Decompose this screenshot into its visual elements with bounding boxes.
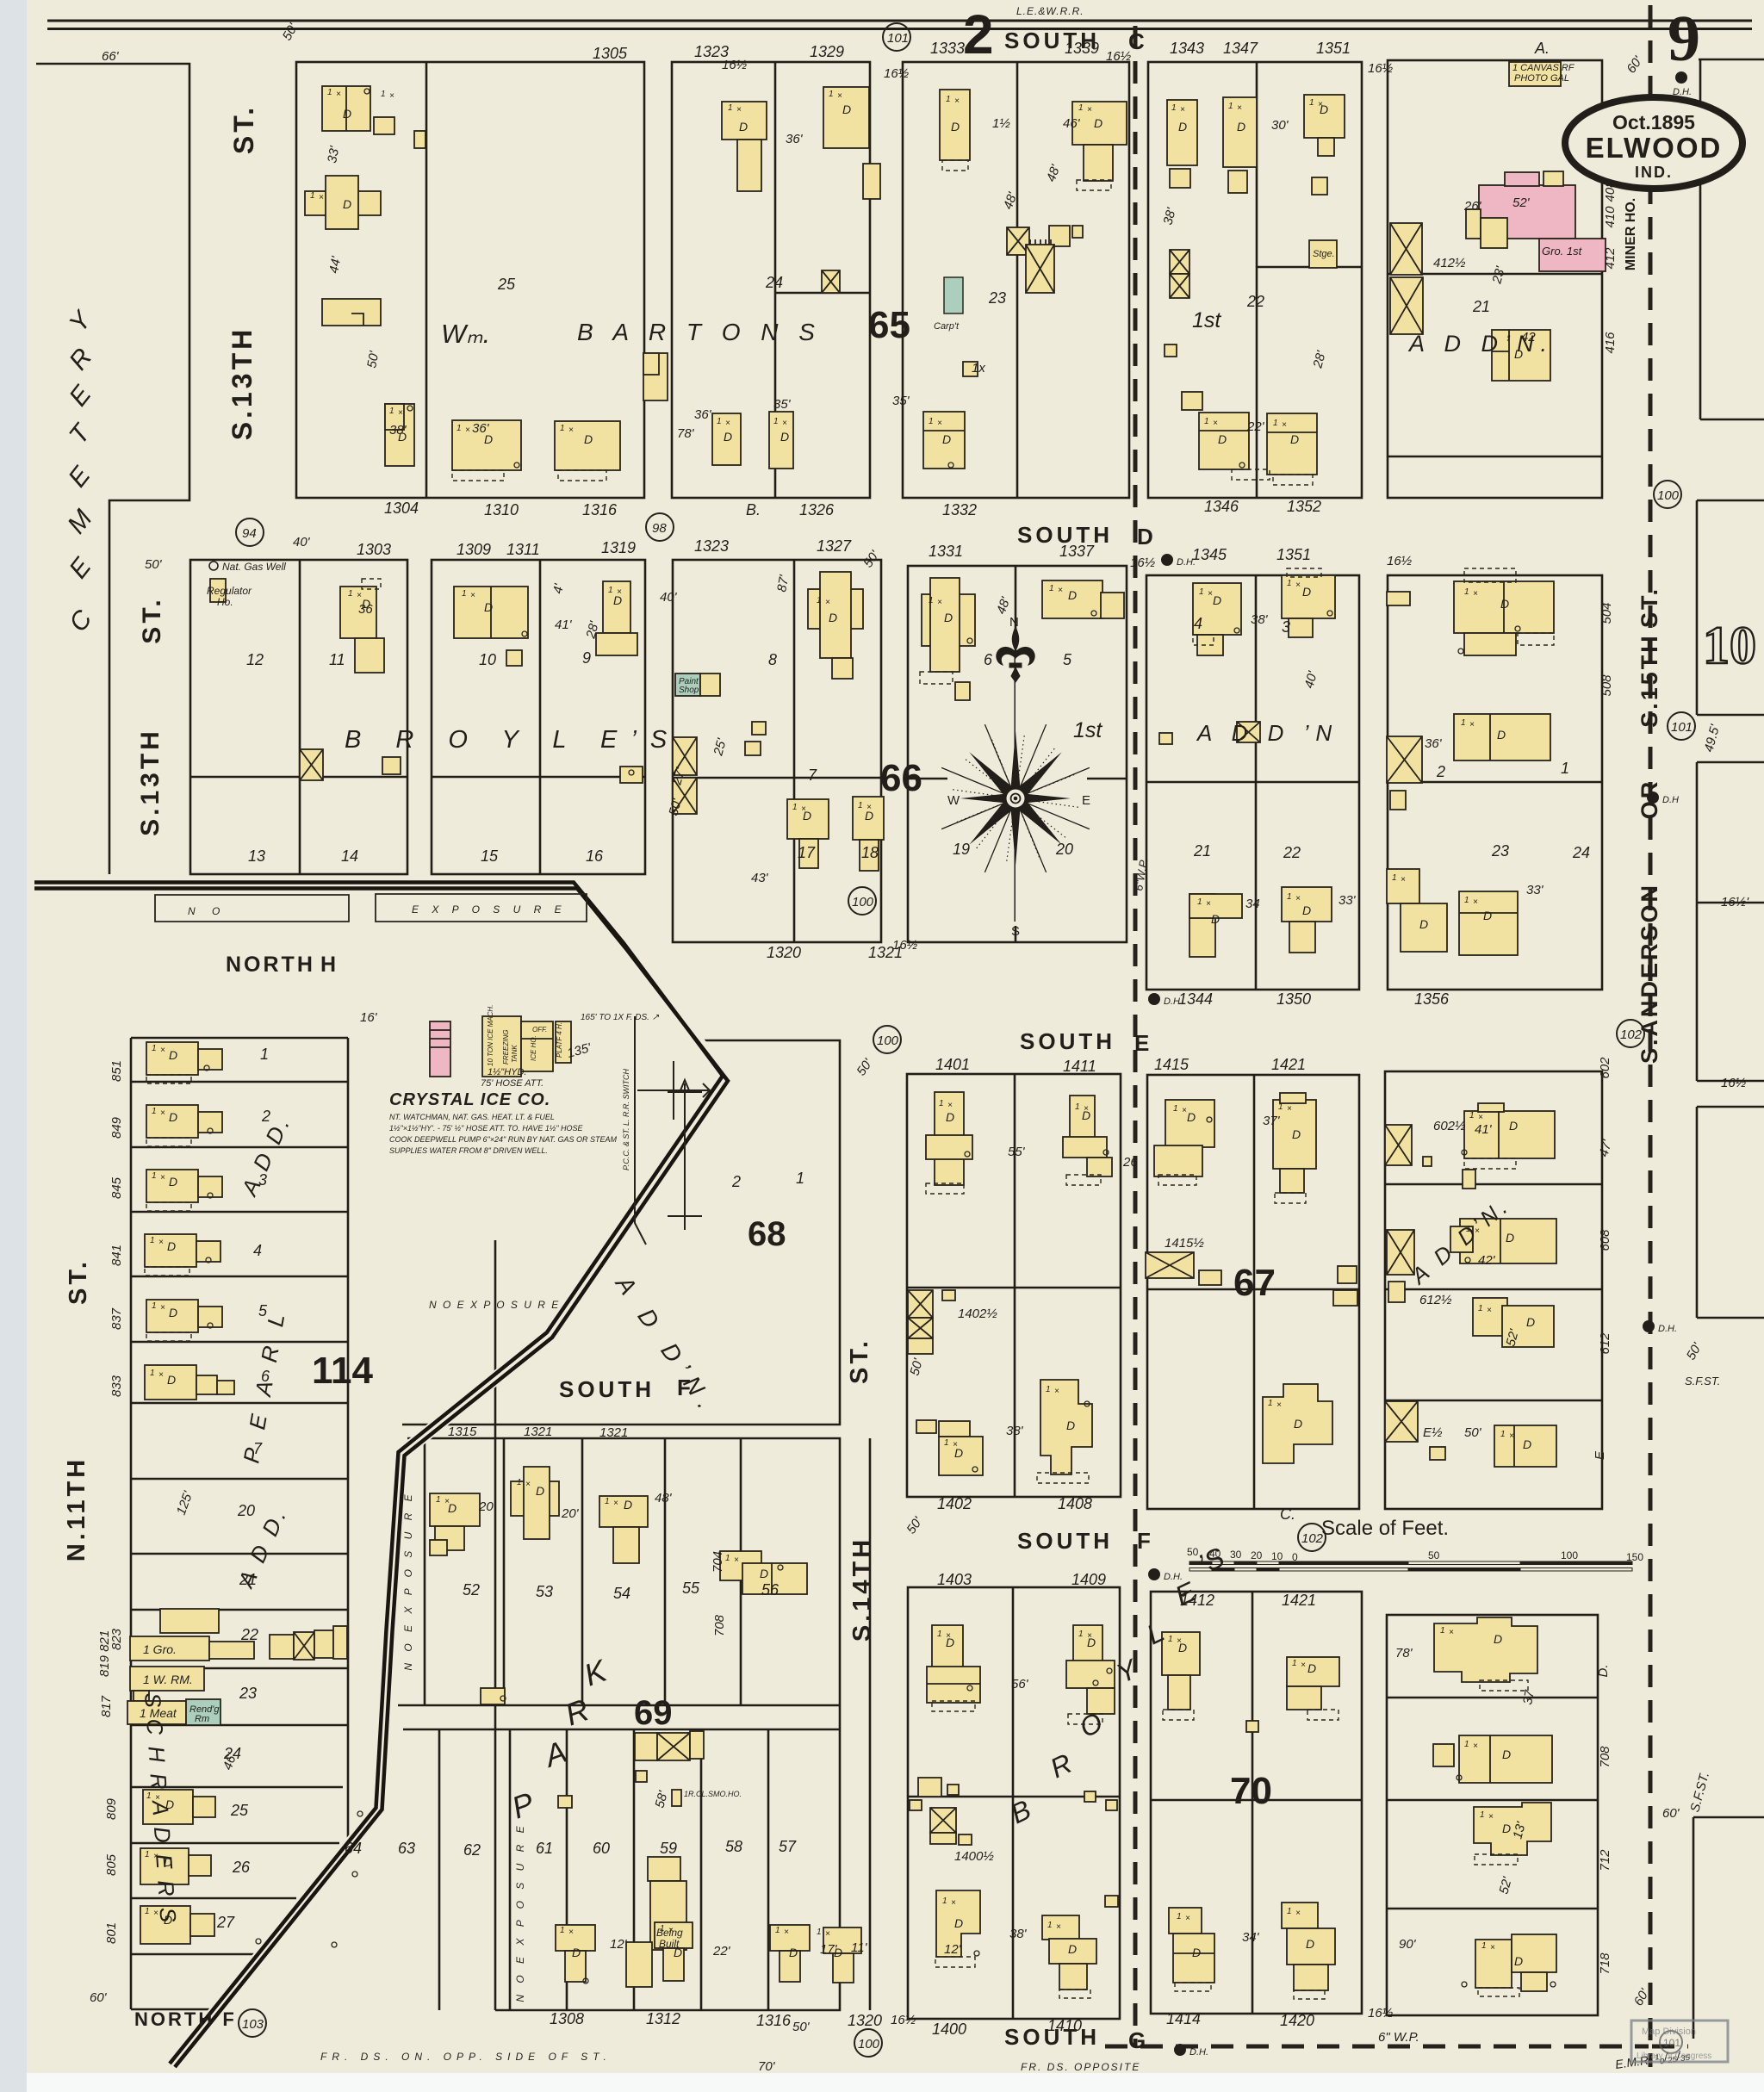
svg-text:E: E (1134, 1030, 1152, 1056)
svg-text:62: 62 (463, 1841, 481, 1859)
svg-text:×: × (1185, 1914, 1190, 1923)
svg-text:1: 1 (728, 103, 733, 113)
svg-text:69: 69 (634, 1694, 673, 1732)
svg-text:416: 416 (1603, 332, 1618, 354)
svg-text:ST.: ST. (846, 1338, 873, 1384)
svg-text:×: × (1213, 419, 1218, 428)
svg-text:1: 1 (1287, 579, 1292, 588)
svg-text:18: 18 (861, 844, 879, 861)
svg-text:D: D (842, 102, 851, 116)
svg-text:1: 1 (327, 88, 332, 97)
svg-text:×: × (1206, 899, 1211, 909)
svg-text:66': 66' (102, 49, 120, 64)
svg-text:20': 20' (561, 1506, 580, 1521)
svg-text:D: D (343, 107, 351, 121)
svg-text:×: × (1473, 1741, 1478, 1751)
svg-text:TANK: TANK (511, 1045, 519, 1063)
svg-text:×: × (668, 1926, 674, 1935)
svg-text:MINER HO.: MINER HO. (1624, 198, 1638, 270)
svg-text:52: 52 (463, 1581, 480, 1598)
svg-text:10: 10 (1703, 617, 1756, 675)
svg-text:13: 13 (248, 847, 265, 865)
svg-text:90': 90' (1399, 1937, 1417, 1952)
svg-text:6" W.P.: 6" W.P. (1378, 2030, 1419, 2045)
svg-text:10 TON ICE MACH.: 10 TON ICE MACH. (487, 1005, 494, 1066)
svg-text:50: 50 (1428, 1549, 1440, 1561)
svg-text:1: 1 (1204, 417, 1209, 426)
svg-text:612½: 612½ (1419, 1293, 1452, 1307)
svg-text:56': 56' (1011, 1677, 1029, 1692)
svg-text:26: 26 (1122, 1155, 1138, 1170)
svg-text:67: 67 (1233, 1262, 1276, 1304)
svg-text:Scale of Feet.: Scale of Feet. (1321, 1517, 1449, 1540)
svg-text:×: × (1487, 1306, 1492, 1315)
svg-text:608: 608 (1598, 1229, 1612, 1251)
svg-text:×: × (158, 1238, 164, 1247)
svg-text:25: 25 (230, 1802, 249, 1819)
svg-text:1: 1 (817, 1927, 822, 1937)
svg-text:Regulator: Regulator (207, 585, 252, 597)
svg-text:1: 1 (1273, 419, 1278, 428)
svg-text:1 Gro.: 1 Gro. (143, 1642, 177, 1656)
svg-text:×: × (160, 1303, 165, 1313)
svg-text:1408: 1408 (1058, 1495, 1092, 1512)
svg-text:55: 55 (682, 1580, 700, 1597)
svg-text:1: 1 (1197, 897, 1202, 907)
svg-text:D: D (624, 1498, 632, 1512)
svg-text:D: D (1213, 593, 1221, 607)
svg-text:D: D (1066, 1418, 1075, 1432)
svg-text:1: 1 (1464, 1740, 1469, 1749)
svg-text:1: 1 (348, 589, 353, 599)
svg-text:×: × (837, 91, 842, 101)
svg-text:D: D (484, 432, 493, 446)
svg-text:36': 36' (786, 132, 804, 146)
svg-text:1: 1 (152, 1107, 157, 1116)
svg-text:D: D (164, 1913, 172, 1927)
svg-text:1: 1 (1168, 1635, 1173, 1644)
svg-text:78': 78' (1395, 1646, 1413, 1661)
svg-text:26: 26 (232, 1859, 251, 1876)
svg-text:61: 61 (536, 1840, 553, 1857)
svg-text:C.: C. (1280, 1505, 1295, 1523)
svg-text:1346: 1346 (1204, 498, 1239, 515)
svg-text:11': 11' (851, 1940, 868, 1955)
svg-text:1st: 1st (1073, 718, 1102, 742)
svg-text:1411: 1411 (1063, 1058, 1096, 1075)
svg-text:1: 1 (1228, 102, 1233, 111)
svg-text:1352: 1352 (1287, 498, 1321, 515)
svg-text:50: 50 (1187, 1546, 1199, 1558)
svg-text:1329: 1329 (810, 43, 844, 60)
svg-text:D.H: D.H (1662, 795, 1679, 805)
svg-text:1: 1 (1292, 1659, 1297, 1668)
svg-text:D.: D. (1596, 1665, 1611, 1678)
svg-text:16½: 16½ (1368, 2006, 1394, 2021)
svg-text:1: 1 (605, 1497, 610, 1506)
svg-text:1403: 1403 (937, 1571, 972, 1588)
svg-text:40: 40 (1209, 1548, 1221, 1560)
svg-text:1x: 1x (972, 361, 985, 376)
svg-text:70': 70' (758, 2059, 776, 2074)
svg-text:×: × (389, 91, 394, 101)
svg-text:1: 1 (1049, 584, 1054, 593)
svg-text:×: × (866, 803, 872, 812)
svg-text:D: D (1187, 1110, 1196, 1124)
svg-text:48': 48' (655, 1491, 673, 1505)
svg-text:1: 1 (560, 424, 565, 433)
svg-text:ST.: ST. (228, 104, 259, 154)
svg-text:36': 36' (694, 407, 712, 422)
svg-text:1402: 1402 (937, 1495, 972, 1512)
svg-text:1 Meat: 1 Meat (140, 1706, 177, 1720)
svg-text:×: × (1401, 875, 1406, 885)
svg-text:6: 6 (261, 1368, 270, 1385)
svg-text:S.14TH: S.14TH (848, 1536, 876, 1642)
svg-text:2: 2 (731, 1173, 741, 1190)
svg-text:N.11TH: N.11TH (63, 1456, 90, 1561)
svg-text:40': 40' (660, 590, 678, 605)
svg-text:26': 26' (1463, 199, 1482, 214)
svg-text:6: 6 (984, 651, 993, 668)
svg-text:ST.: ST. (65, 1258, 92, 1305)
svg-text:1333: 1333 (930, 40, 965, 57)
svg-text:×: × (1301, 1661, 1306, 1670)
svg-text:16½: 16½ (722, 58, 748, 72)
svg-text:46': 46' (1063, 116, 1081, 131)
svg-text:59: 59 (660, 1840, 677, 1857)
svg-text:1304: 1304 (384, 500, 419, 517)
svg-text:1323: 1323 (694, 537, 729, 555)
svg-text:D: D (362, 597, 370, 611)
svg-text:1409: 1409 (1071, 1571, 1106, 1588)
svg-text:P.C.C. & ST. L. R.R. SWITCH: P.C.C. & ST. L. R.R. SWITCH (622, 1068, 630, 1170)
svg-text:1343: 1343 (1170, 40, 1204, 57)
svg-text:1415: 1415 (1154, 1056, 1189, 1073)
svg-text:D: D (780, 430, 789, 444)
svg-text:23: 23 (1491, 842, 1509, 860)
svg-text:27: 27 (216, 1914, 235, 1931)
svg-text:×: × (1058, 586, 1063, 595)
svg-text:D: D (1292, 1127, 1301, 1141)
svg-text:25: 25 (497, 276, 516, 293)
svg-text:16½: 16½ (1130, 556, 1156, 570)
svg-text:A D D ’N: A D D ’N (1196, 720, 1339, 746)
svg-text:704: 704 (711, 1551, 725, 1573)
svg-text:E X P O S U R E: E X P O S U R E (412, 903, 567, 916)
svg-text:50': 50' (145, 557, 163, 572)
svg-text:PLATF 4 H.: PLATF 4 H. (556, 1022, 563, 1058)
svg-text:16½: 16½ (1721, 1076, 1747, 1090)
svg-text:COOK DEEPWELL PUMP 6"×24" RUN: COOK DEEPWELL PUMP 6"×24" RUN BY NAT. GA… (389, 1135, 618, 1144)
svg-text:1: 1 (1440, 1626, 1445, 1636)
svg-text:×: × (1478, 1113, 1483, 1122)
svg-text:53: 53 (536, 1583, 553, 1600)
svg-text:D: D (1302, 903, 1311, 917)
svg-text:×: × (470, 591, 475, 600)
svg-text:1: 1 (944, 1438, 949, 1448)
svg-text:Rm: Rm (195, 1714, 209, 1724)
svg-text:D: D (1509, 1119, 1518, 1133)
svg-text:16½: 16½ (892, 938, 918, 953)
svg-text:809: 809 (104, 1797, 119, 1820)
svg-text:1: 1 (1469, 1111, 1475, 1120)
svg-text:1: 1 (608, 586, 613, 595)
svg-text:837: 837 (109, 1307, 124, 1330)
svg-text:1420: 1420 (1280, 2012, 1314, 2029)
svg-text:×: × (953, 1440, 958, 1450)
svg-text:×: × (155, 1793, 160, 1803)
svg-text:D: D (169, 1175, 177, 1189)
svg-text:33': 33' (1526, 883, 1544, 897)
svg-text:1351: 1351 (1276, 546, 1311, 563)
svg-text:×: × (1282, 420, 1287, 430)
svg-text:1: 1 (146, 1791, 152, 1801)
svg-text:58: 58 (725, 1838, 742, 1855)
svg-text:1: 1 (436, 1495, 441, 1505)
svg-text:100: 100 (858, 2037, 880, 2052)
svg-text:1412: 1412 (1180, 1592, 1214, 1609)
svg-text:30: 30 (1230, 1549, 1242, 1561)
svg-text:16½: 16½ (1106, 49, 1132, 64)
svg-text:1: 1 (937, 1630, 942, 1639)
svg-text:1: 1 (796, 1170, 804, 1187)
svg-text:×: × (736, 105, 742, 115)
svg-text:×: × (1318, 100, 1323, 109)
svg-text:D: D (1526, 1315, 1535, 1329)
svg-text:1: 1 (1078, 1630, 1084, 1639)
svg-text:1: 1 (929, 596, 934, 605)
svg-text:1: 1 (1466, 1225, 1471, 1234)
svg-text:602: 602 (1598, 1057, 1612, 1079)
svg-text:8: 8 (768, 651, 777, 668)
svg-text:1: 1 (1392, 873, 1397, 883)
svg-text:D: D (398, 430, 407, 444)
svg-text:5: 5 (258, 1302, 268, 1319)
svg-text:S: S (1011, 924, 1020, 939)
svg-text:×: × (444, 1497, 450, 1506)
svg-text:75' HOSE ATT.: 75' HOSE ATT. (481, 1078, 543, 1089)
svg-text:3: 3 (1282, 618, 1290, 636)
svg-text:1421: 1421 (1282, 1592, 1316, 1609)
svg-text:38': 38' (1251, 612, 1269, 627)
svg-text:1: 1 (462, 589, 467, 599)
svg-text:1344: 1344 (1178, 990, 1213, 1008)
svg-text:1356: 1356 (1414, 990, 1450, 1008)
svg-text:1: 1 (1481, 1941, 1487, 1951)
svg-text:D: D (1211, 912, 1220, 926)
svg-text:15: 15 (481, 847, 499, 865)
svg-text:845: 845 (109, 1176, 124, 1199)
svg-text:24: 24 (765, 274, 783, 291)
svg-text:D: D (724, 430, 732, 444)
svg-text:1: 1 (560, 1926, 565, 1935)
svg-text:D: D (167, 1239, 176, 1253)
svg-text:D.H.: D.H. (1658, 1324, 1677, 1334)
svg-text:612: 612 (1598, 1332, 1612, 1355)
svg-text:×: × (1473, 589, 1478, 599)
svg-text:1: 1 (1461, 718, 1466, 728)
svg-text:34: 34 (1245, 897, 1260, 911)
svg-text:41': 41' (555, 618, 573, 632)
svg-text:1: 1 (660, 1924, 665, 1934)
svg-text:×: × (525, 1480, 531, 1489)
svg-text:712: 712 (1598, 1849, 1612, 1872)
svg-text:N O: N O (188, 905, 227, 917)
svg-text:1308: 1308 (550, 2010, 584, 2027)
svg-text:D.H.: D.H. (1177, 557, 1196, 568)
svg-text:43': 43' (751, 871, 769, 885)
svg-text:718: 718 (1598, 1952, 1612, 1975)
svg-text:1310: 1310 (484, 501, 519, 518)
svg-text:×: × (951, 1898, 956, 1908)
svg-text:×: × (1473, 897, 1478, 907)
svg-text:16½': 16½' (1721, 895, 1749, 909)
svg-text:1332: 1332 (942, 501, 977, 518)
svg-text:20': 20' (478, 1499, 497, 1514)
svg-text:D: D (584, 432, 593, 446)
svg-text:30': 30' (1271, 118, 1289, 133)
svg-text:20: 20 (237, 1502, 255, 1519)
svg-text:7: 7 (253, 1440, 263, 1457)
svg-text:24: 24 (1572, 844, 1590, 861)
svg-text:1402½: 1402½ (958, 1307, 997, 1321)
svg-text:D: D (1192, 1946, 1201, 1959)
svg-text:D: D (1218, 432, 1227, 446)
svg-text:×: × (937, 419, 942, 428)
svg-text:12': 12' (610, 1937, 628, 1952)
svg-text:Carp't: Carp't (934, 321, 960, 332)
svg-text:10: 10 (1271, 1550, 1283, 1562)
svg-text:1: 1 (942, 1896, 947, 1906)
svg-text:412½: 412½ (1433, 256, 1466, 270)
svg-text:D: D (169, 1306, 177, 1319)
svg-text:Library of Congress: Library of Congress (1637, 2052, 1711, 2061)
svg-text:16½: 16½ (1387, 554, 1413, 568)
svg-text:412: 412 (1603, 247, 1618, 270)
svg-text:3: 3 (258, 1171, 267, 1189)
svg-text:D: D (829, 611, 837, 624)
svg-text:S.13TH: S.13TH (227, 326, 258, 440)
svg-text:1: 1 (150, 1369, 155, 1378)
svg-text:D.H.: D.H. (1164, 1572, 1183, 1582)
svg-text:S.F.ST.: S.F.ST. (1685, 1375, 1720, 1387)
svg-text:34': 34' (1242, 1930, 1260, 1945)
svg-text:N O E X P O S U R E: N O E X P O S U R E (514, 1822, 526, 2002)
svg-text:20: 20 (1251, 1549, 1263, 1561)
svg-text:PHOTO GAL: PHOTO GAL (1514, 73, 1569, 84)
svg-text:1321: 1321 (524, 1425, 552, 1439)
svg-text:×: × (158, 1370, 164, 1380)
svg-text:17: 17 (798, 844, 816, 861)
svg-text:4: 4 (1194, 615, 1202, 632)
svg-text:×: × (357, 591, 362, 600)
svg-text:7: 7 (808, 767, 817, 784)
svg-text:1415½: 1415½ (1165, 1236, 1204, 1251)
svg-text:×: × (1087, 1631, 1092, 1641)
svg-text:1: 1 (1464, 587, 1469, 597)
svg-text:102: 102 (1620, 1027, 1643, 1042)
svg-text:1327: 1327 (817, 537, 852, 555)
svg-text:×: × (1237, 103, 1242, 113)
svg-text:FR. DS. ON. OPP. SIDE OF: FR. DS. ON. OPP. SIDE OF ST. (320, 2051, 612, 2063)
svg-text:1321: 1321 (599, 1425, 628, 1440)
svg-text:1: 1 (773, 417, 779, 426)
svg-text:×: × (947, 1101, 953, 1110)
svg-text:B A R T O N S: B A R T O N S (577, 319, 822, 345)
svg-text:22': 22' (1246, 419, 1265, 434)
svg-text:D: D (951, 120, 960, 133)
svg-text:D: D (536, 1484, 544, 1498)
svg-text:1: 1 (1287, 892, 1292, 902)
svg-text:849: 849 (109, 1116, 124, 1139)
svg-text:D: D (834, 1946, 842, 1959)
svg-text:1: 1 (1478, 1304, 1483, 1313)
svg-text:1: 1 (775, 1926, 780, 1935)
svg-text:1326: 1326 (799, 501, 835, 518)
svg-text:1: 1 (929, 417, 934, 426)
svg-text:22: 22 (240, 1626, 258, 1643)
svg-text:70: 70 (1230, 1770, 1272, 1812)
svg-text:1: 1 (1287, 1907, 1292, 1916)
svg-text:×: × (1208, 589, 1213, 599)
svg-text:E: E (1593, 1450, 1607, 1460)
svg-text:64: 64 (345, 1840, 362, 1857)
svg-text:1: 1 (1046, 1385, 1051, 1394)
svg-text:1: 1 (517, 1478, 522, 1487)
svg-text:1: 1 (457, 424, 462, 433)
svg-text:N O E X P O S U R E: N O E X P O S U R E (402, 1490, 414, 1670)
svg-text:21: 21 (1193, 842, 1211, 860)
svg-text:×: × (617, 587, 622, 597)
svg-text:FREEZING: FREEZING (502, 1030, 510, 1065)
svg-text:×: × (946, 1631, 951, 1641)
svg-text:×: × (153, 1852, 158, 1861)
svg-text:60': 60' (90, 1990, 108, 2005)
svg-text:1316: 1316 (756, 2012, 792, 2029)
svg-text:OFF.: OFF. (532, 1026, 547, 1034)
svg-text:1401: 1401 (935, 1056, 970, 1073)
svg-text:D: D (1494, 1632, 1502, 1646)
svg-text:D: D (1137, 524, 1157, 549)
svg-text:1: 1 (817, 596, 822, 605)
svg-text:2: 2 (261, 1108, 270, 1125)
svg-text:1: 1 (1561, 760, 1569, 777)
svg-text:1: 1 (145, 1850, 150, 1859)
svg-text:1: 1 (150, 1236, 155, 1245)
svg-text:1331: 1331 (929, 543, 963, 560)
svg-text:1: 1 (1173, 1104, 1178, 1114)
svg-text:×: × (954, 96, 960, 106)
svg-text:1: 1 (1078, 103, 1084, 113)
svg-text:D: D (165, 1797, 174, 1811)
svg-text:103: 103 (242, 2017, 264, 2032)
svg-text:1: 1 (1464, 896, 1469, 905)
svg-text:D.H.: D.H. (1189, 2047, 1208, 2058)
svg-text:NT. WATCHMAN, NAT. GAS. HEAT.: NT. WATCHMAN, NAT. GAS. HEAT. LT. & FUEL (389, 1113, 555, 1121)
svg-text:1st: 1st (1192, 308, 1221, 332)
svg-text:D: D (739, 120, 748, 133)
svg-text:68: 68 (748, 1215, 786, 1253)
svg-text:1400½: 1400½ (954, 1849, 994, 1864)
svg-text:D: D (1514, 347, 1523, 361)
svg-text:1: 1 (829, 90, 834, 99)
svg-text:1351: 1351 (1316, 40, 1351, 57)
svg-text:1: 1 (939, 1099, 944, 1108)
svg-text:ELWOOD: ELWOOD (1586, 132, 1723, 164)
svg-text:D: D (1178, 120, 1187, 133)
svg-text:×: × (1295, 1909, 1301, 1918)
